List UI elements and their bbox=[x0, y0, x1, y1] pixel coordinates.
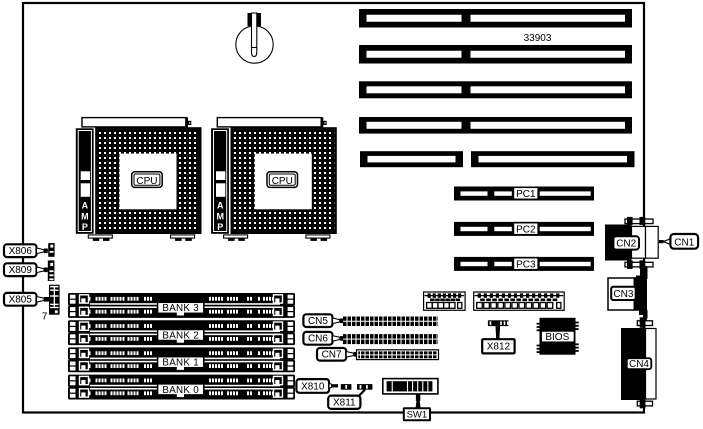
svg-text:CPU: CPU bbox=[272, 176, 293, 187]
svg-text:P: P bbox=[82, 222, 88, 232]
svg-text:M: M bbox=[81, 211, 89, 221]
svg-text:X809: X809 bbox=[9, 265, 33, 276]
svg-text:P: P bbox=[217, 222, 223, 232]
svg-text:CPU: CPU bbox=[136, 176, 157, 187]
svg-text:7: 7 bbox=[42, 312, 48, 323]
svg-text:X811: X811 bbox=[333, 398, 356, 409]
svg-text:PC2: PC2 bbox=[516, 224, 536, 235]
svg-text:CN4: CN4 bbox=[629, 359, 649, 370]
svg-text:CN2: CN2 bbox=[616, 239, 636, 250]
svg-text:CN6: CN6 bbox=[308, 334, 328, 345]
svg-text:CN1: CN1 bbox=[674, 237, 694, 248]
svg-text:CN3: CN3 bbox=[613, 289, 633, 300]
svg-text:CN7: CN7 bbox=[322, 350, 342, 361]
svg-text:33903: 33903 bbox=[524, 33, 552, 44]
svg-text:X810: X810 bbox=[301, 381, 325, 392]
svg-text:X812: X812 bbox=[487, 342, 511, 353]
svg-text:A: A bbox=[82, 201, 89, 211]
svg-text:SW1: SW1 bbox=[407, 410, 428, 421]
svg-text:PC1: PC1 bbox=[516, 189, 536, 200]
svg-text:PC3: PC3 bbox=[516, 259, 536, 270]
svg-text:CN5: CN5 bbox=[308, 316, 328, 327]
svg-text:X806: X806 bbox=[9, 246, 33, 257]
svg-text:BIOS: BIOS bbox=[545, 332, 569, 343]
svg-text:A: A bbox=[217, 201, 224, 211]
svg-text:M: M bbox=[216, 211, 224, 221]
svg-text:X805: X805 bbox=[9, 295, 33, 306]
